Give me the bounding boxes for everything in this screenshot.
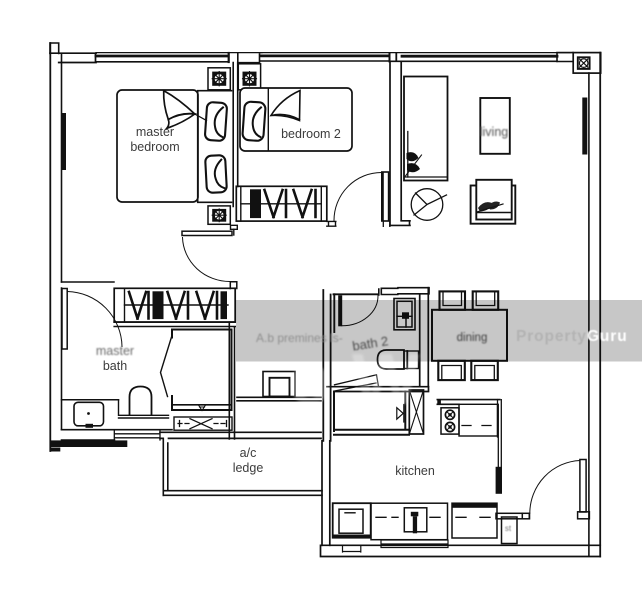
svg-text:A.b premines ls-: A.b premines ls- (256, 331, 343, 345)
svg-text:ledge: ledge (233, 461, 264, 475)
svg-text:a/c: a/c (240, 446, 257, 460)
svg-text:PropertyGuru: PropertyGuru (516, 328, 628, 345)
svg-text:bedroom: bedroom (130, 140, 179, 154)
svg-text:dining: dining (457, 332, 488, 344)
svg-text:bedroom 2: bedroom 2 (281, 127, 341, 141)
svg-text:master: master (96, 344, 134, 358)
svg-text:st: st (505, 524, 512, 533)
svg-text:master: master (136, 125, 174, 139)
svg-text:kitchen: kitchen (395, 464, 435, 478)
svg-text:bath: bath (103, 359, 127, 373)
svg-text:living: living (480, 125, 509, 139)
